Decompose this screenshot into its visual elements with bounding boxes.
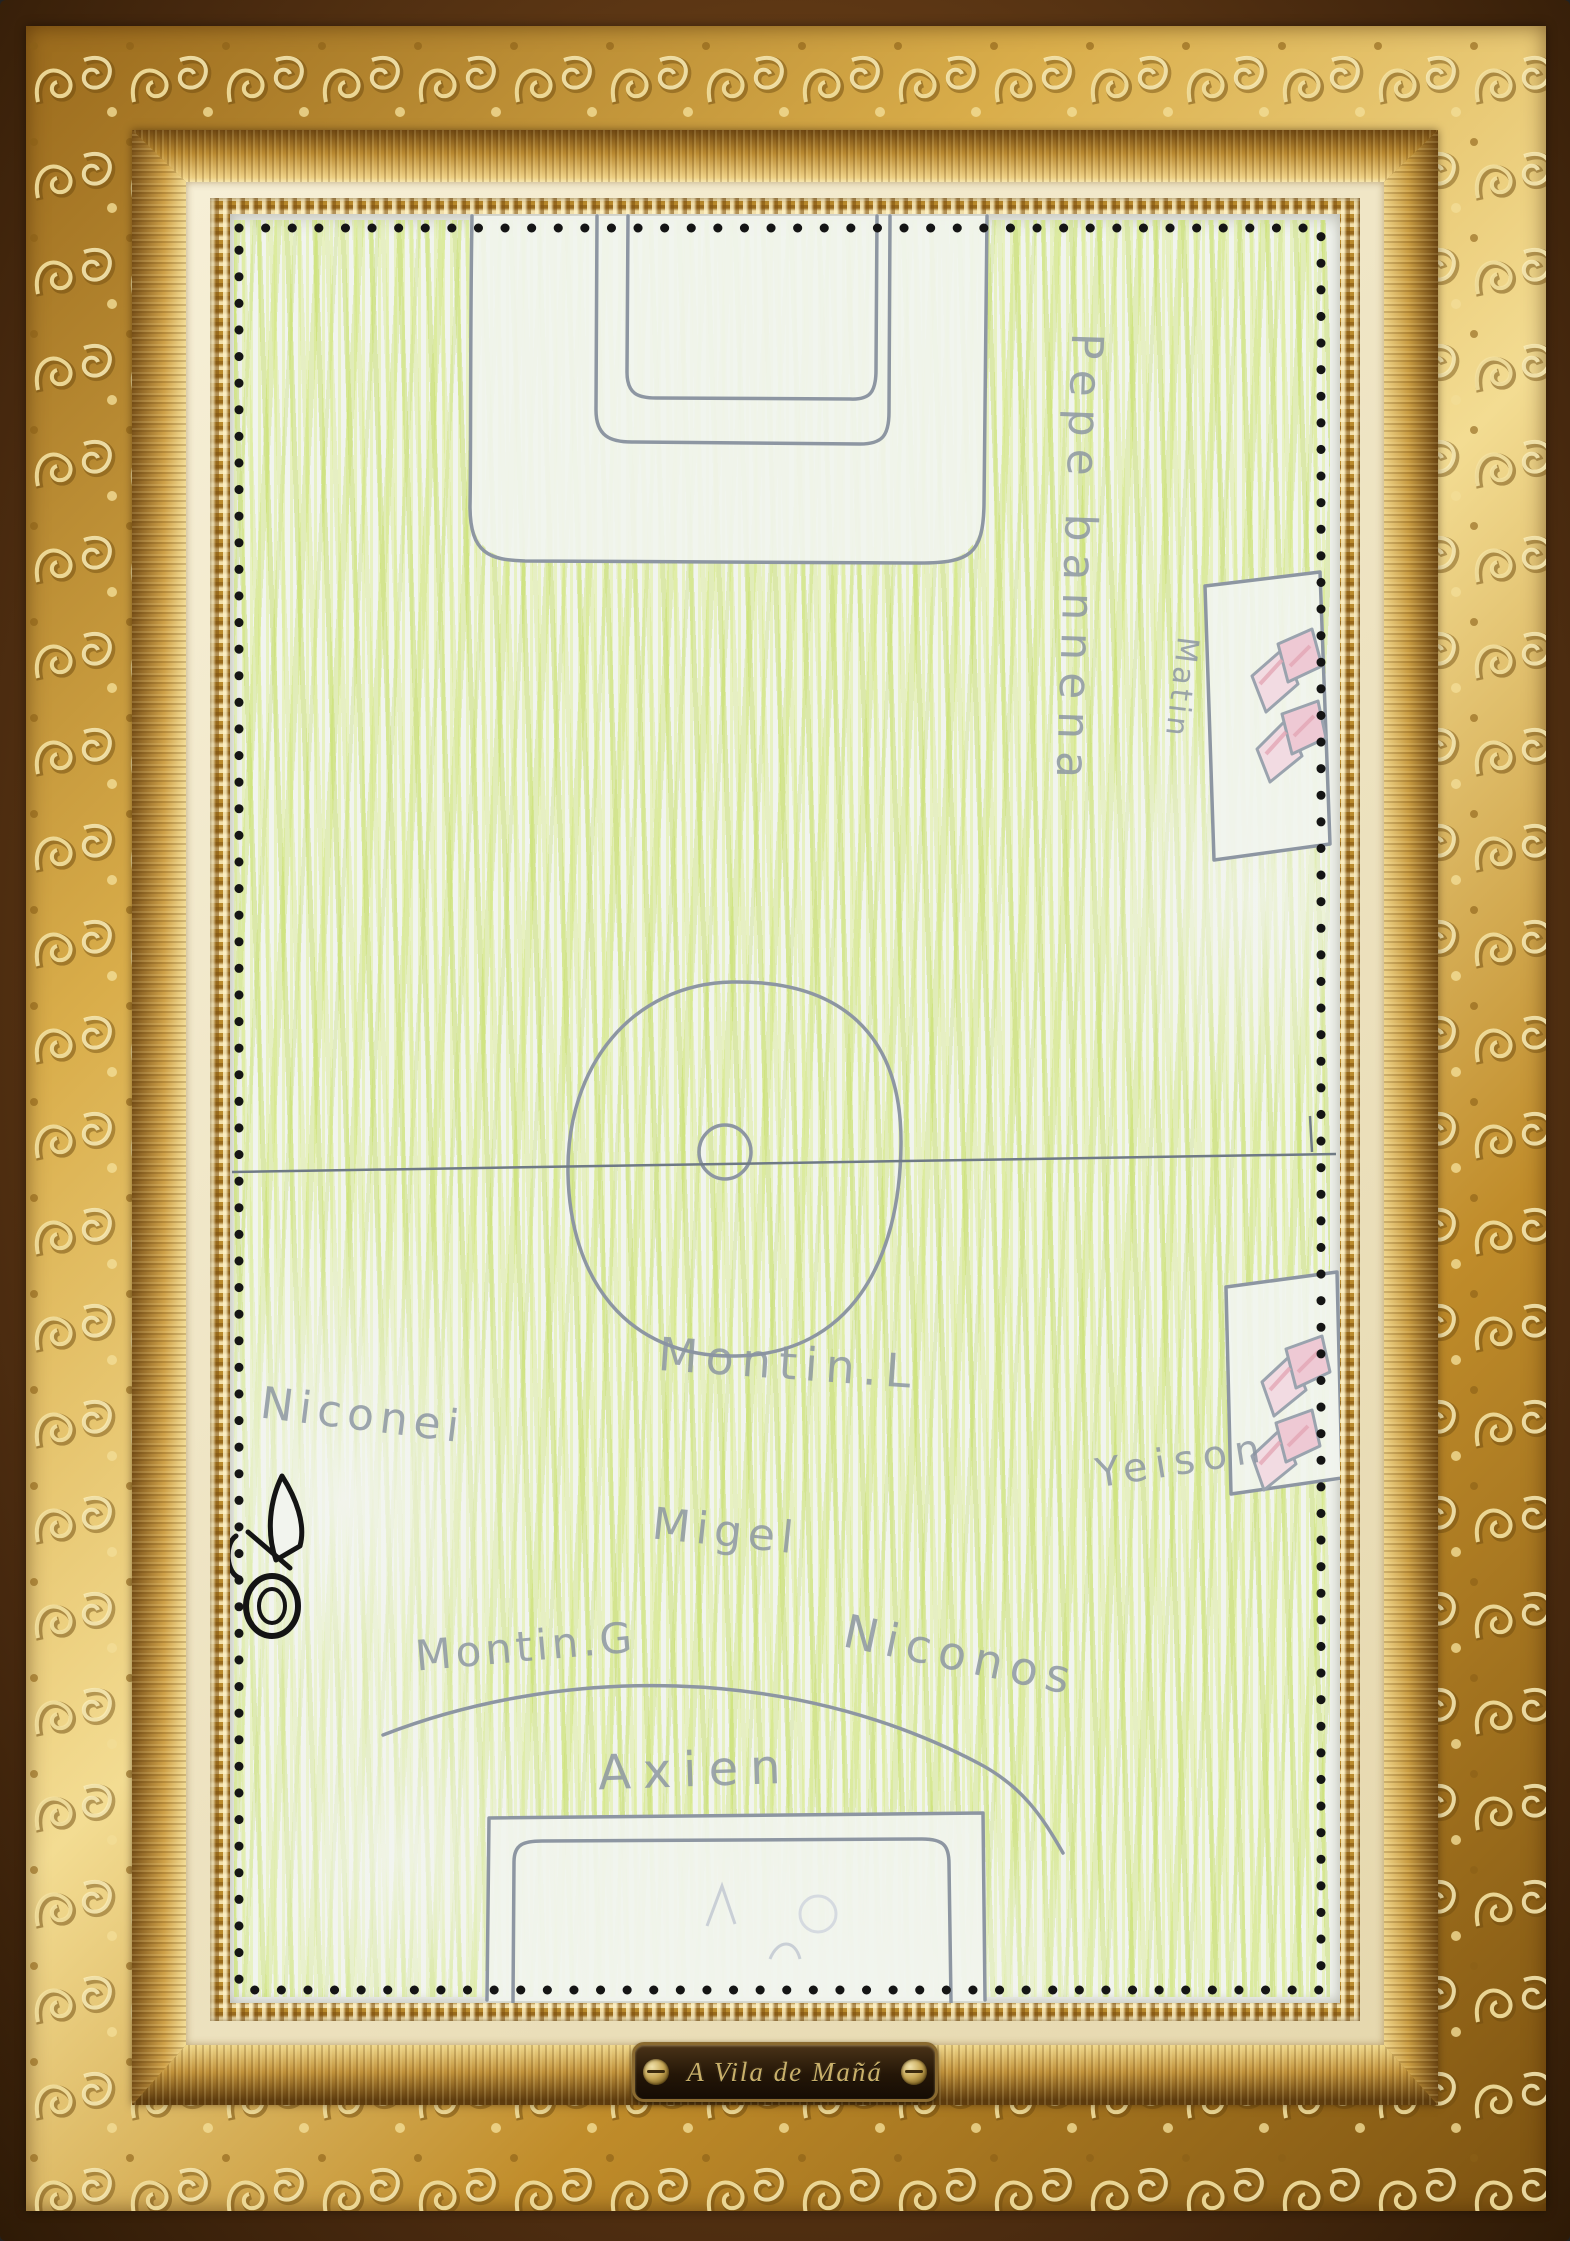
football-pitch-pencil-drawing <box>230 214 1340 2003</box>
frame-plaque: A Vila de Mañá <box>632 2042 938 2102</box>
bevel-right <box>1384 130 1438 2105</box>
framed-drawing-photo: Pepe bannena Matin Montin.L Niconei Mige… <box>0 0 1570 2241</box>
center-circle <box>568 982 901 1356</box>
uncolored-areas <box>470 216 1340 2001</box>
player-name-axien: Axien <box>597 1739 793 1802</box>
halfway-line <box>232 1116 1336 1172</box>
bevel-left <box>132 130 186 2105</box>
bevel-top <box>132 130 1438 182</box>
screw-icon <box>901 2059 927 2085</box>
screw-icon <box>643 2059 669 2085</box>
plaque-title: A Vila de Mañá <box>669 2057 901 2088</box>
center-spot-circle <box>699 1125 751 1179</box>
artwork-paper: Pepe bannena Matin Montin.L Niconei Mige… <box>230 214 1340 2003</box>
